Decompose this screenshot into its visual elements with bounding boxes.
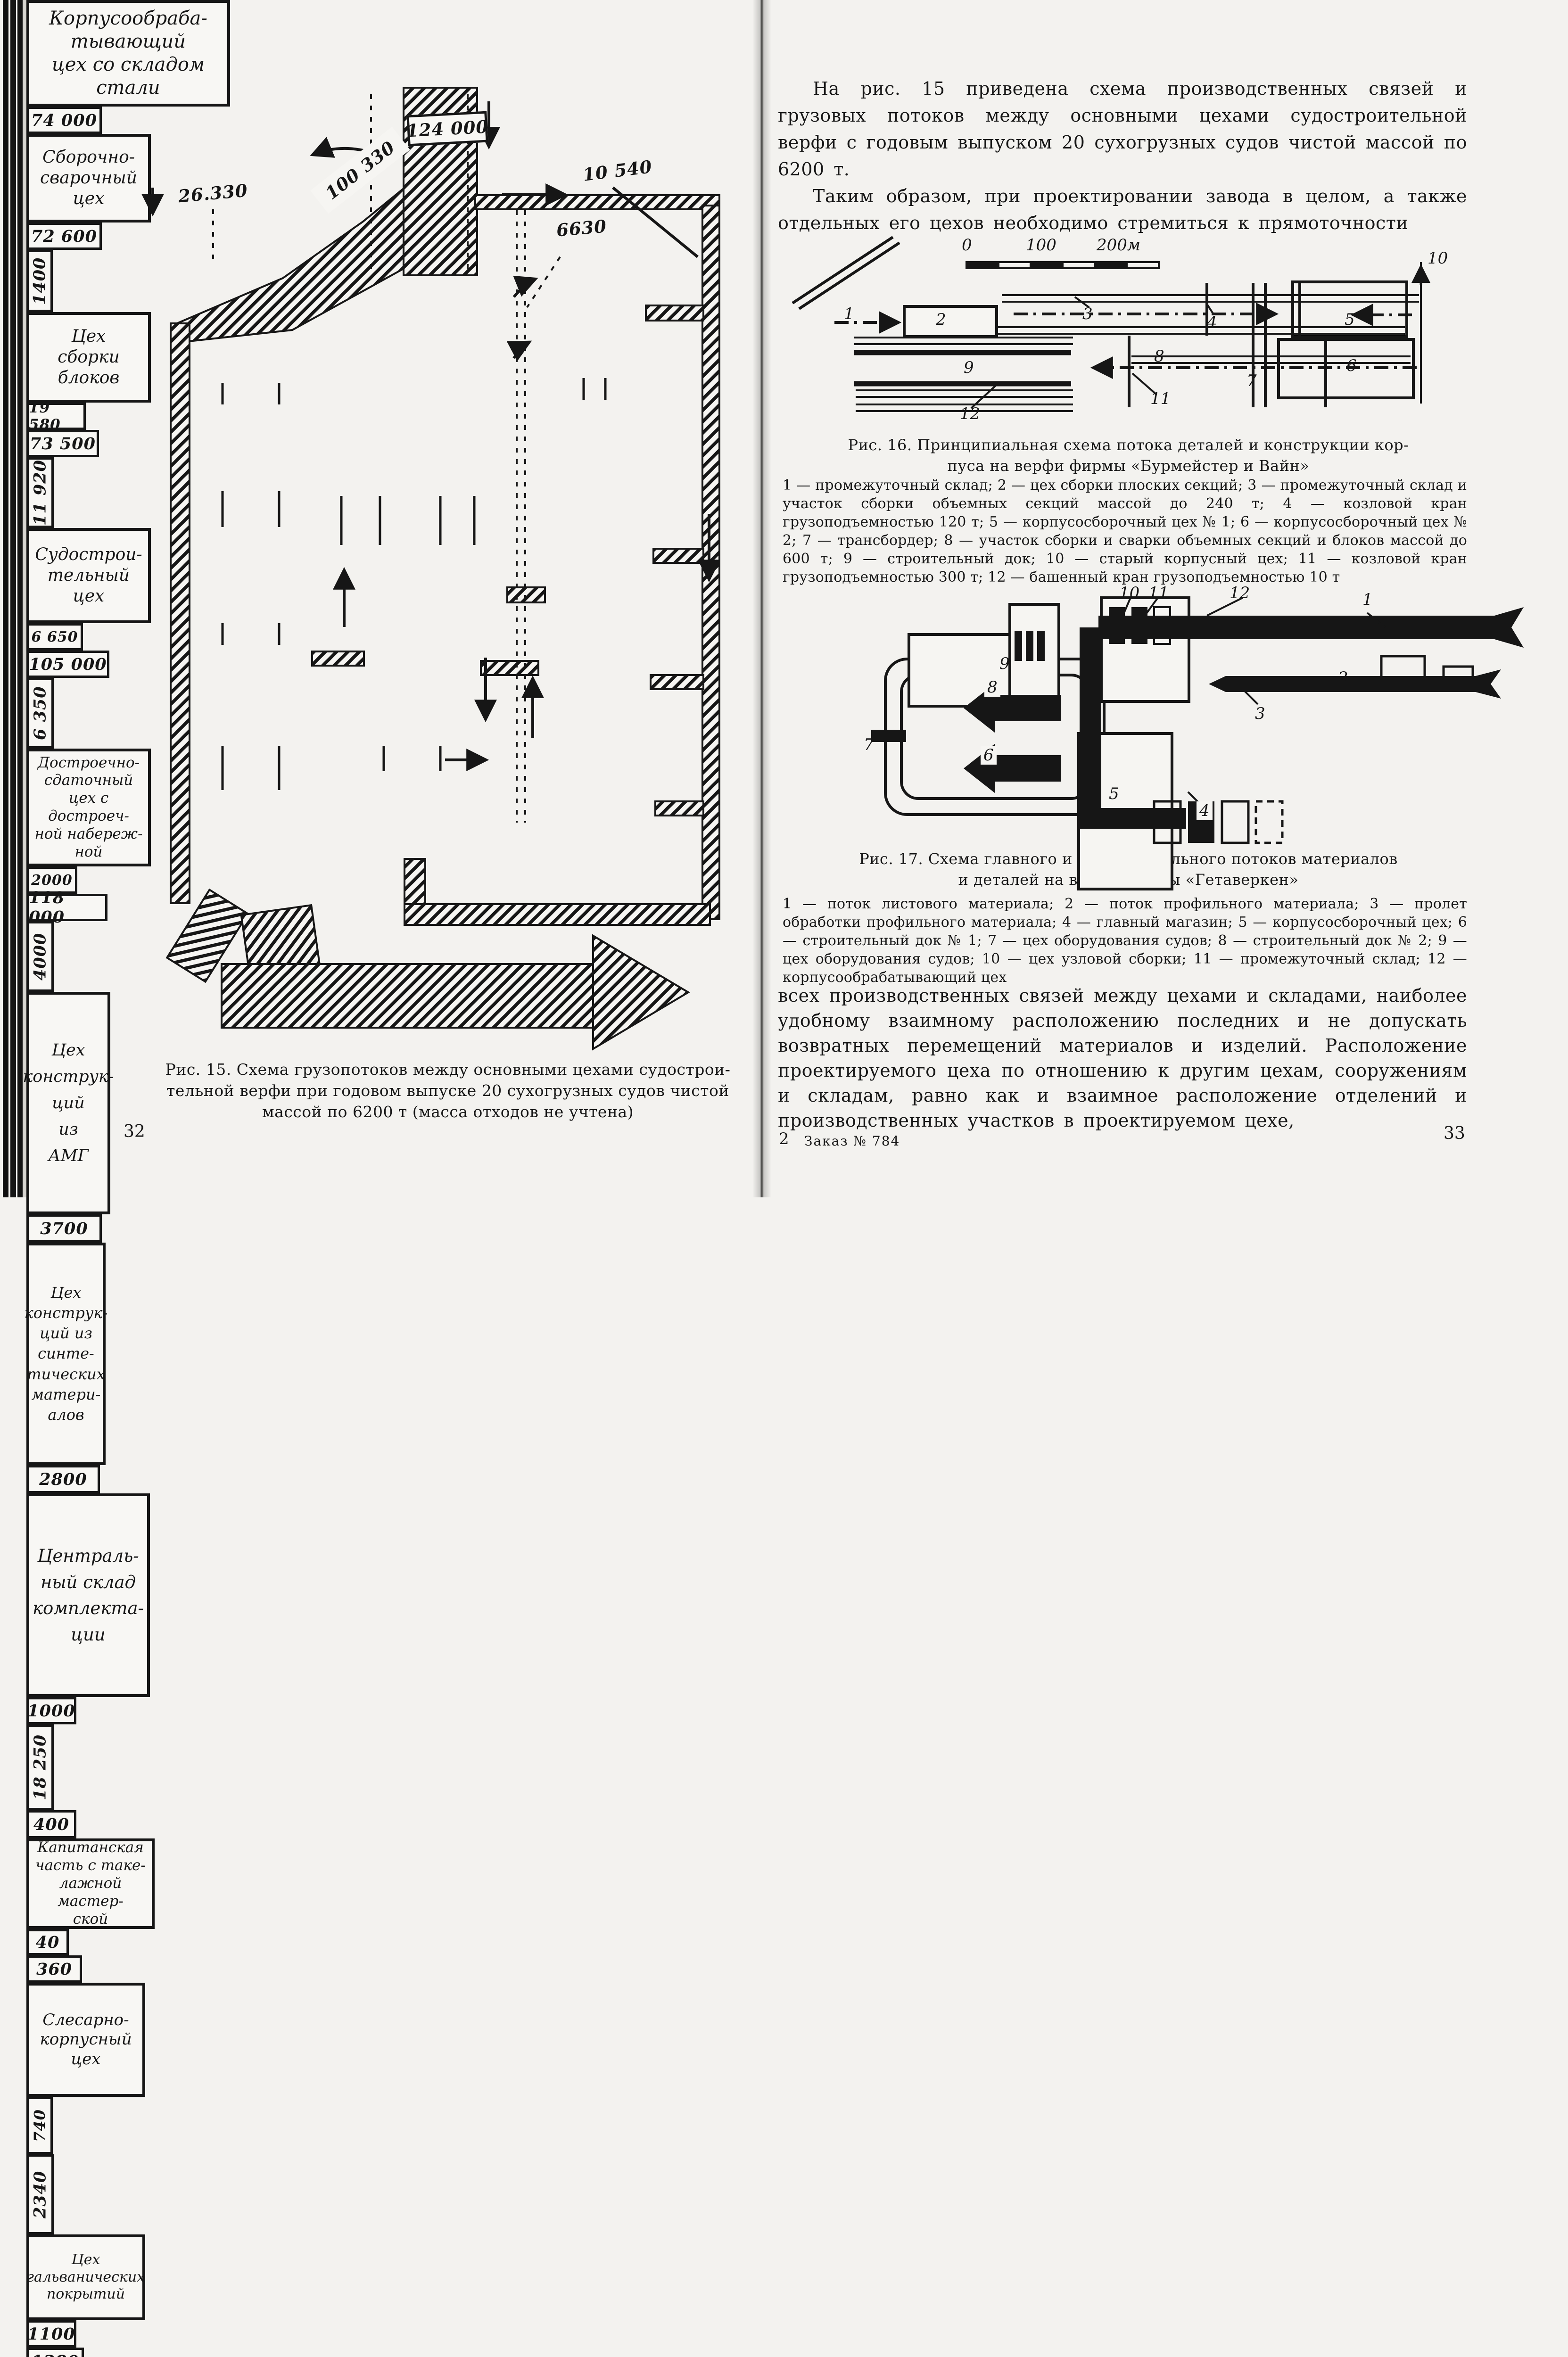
- fig17-callout-8: 8: [984, 678, 1000, 697]
- fig16-scale-100: 100: [1026, 236, 1056, 255]
- fig17-callout-12: 12: [1230, 584, 1250, 602]
- num-slesar-left: 740: [26, 2097, 53, 2154]
- num-galvanika-top: 1100: [26, 2320, 76, 2348]
- fig16-callout-5: 5: [1345, 310, 1355, 329]
- fig17-callout-9: 9: [999, 654, 1010, 673]
- num-sklad-side: 18 250: [26, 1724, 54, 1810]
- book-scan-spread: { "left_page": { "page_number": "32", "f…: [0, 0, 1568, 1197]
- figure-linework: [0, 0, 1568, 1197]
- fig17-callout-3: 3: [1255, 704, 1265, 723]
- fig16-callout-10: 10: [1428, 249, 1448, 268]
- fig17-callout-1: 1: [1362, 590, 1373, 609]
- box-slesar: Слесарно- корпусный цех: [26, 1983, 145, 2097]
- num-sklad-top: 1000: [26, 1697, 76, 1724]
- box-sintetika: Цех конструк- ций из синте- тических мат…: [26, 1243, 106, 1465]
- num-galvanika-bottom: 1380: [26, 2348, 84, 2357]
- box-galvanika: Цех гальванических покрытий: [26, 2234, 145, 2320]
- num-kapitan-bottom: 360: [26, 1955, 82, 1983]
- box-sklad: Централь- ный склад комплекта- ции: [26, 1493, 150, 1697]
- fig16-callout-7: 7: [1246, 371, 1257, 390]
- num-kapitan-top: 40: [26, 1929, 69, 1955]
- fig16-callout-12: 12: [960, 404, 980, 423]
- num-slesar-side: 2340: [26, 2154, 54, 2234]
- num-sintetika-top: 2800: [26, 1465, 100, 1493]
- fig16-callout-9: 9: [964, 358, 974, 377]
- fig16-callout-2: 2: [936, 310, 946, 329]
- fig16-callout-3: 3: [1082, 305, 1093, 323]
- fig17-callout-2: 2: [1338, 668, 1348, 687]
- flow-label-6630: 6630: [555, 215, 607, 240]
- fig16-scale-200: 200м: [1097, 236, 1140, 255]
- fig17-callout-5: 5: [1109, 784, 1119, 803]
- fig17-callout-10: 10: [1119, 584, 1139, 602]
- fig16-callout-8: 8: [1154, 347, 1164, 366]
- fig16-scale-0: 0: [962, 236, 972, 255]
- fig17-callout-11: 11: [1148, 584, 1169, 602]
- fig17-callout-7: 7: [864, 735, 874, 754]
- fig16-callout-11: 11: [1150, 389, 1171, 408]
- box-kapitan: Капитанская часть с таке- лажной мастер-…: [26, 1838, 155, 1929]
- fig17-callout-6: 6: [981, 746, 997, 765]
- fig16-callout-6: 6: [1346, 356, 1357, 375]
- fig16-callout-1: 1: [844, 305, 854, 323]
- num-amg-top: 3700: [26, 1214, 102, 1243]
- num-sklad-bottom: 400: [26, 1810, 76, 1838]
- fig17-callout-4: 4: [1197, 801, 1213, 820]
- flow-label-124000: 124 000: [406, 111, 488, 147]
- fig16-callout-4: 4: [1207, 313, 1217, 332]
